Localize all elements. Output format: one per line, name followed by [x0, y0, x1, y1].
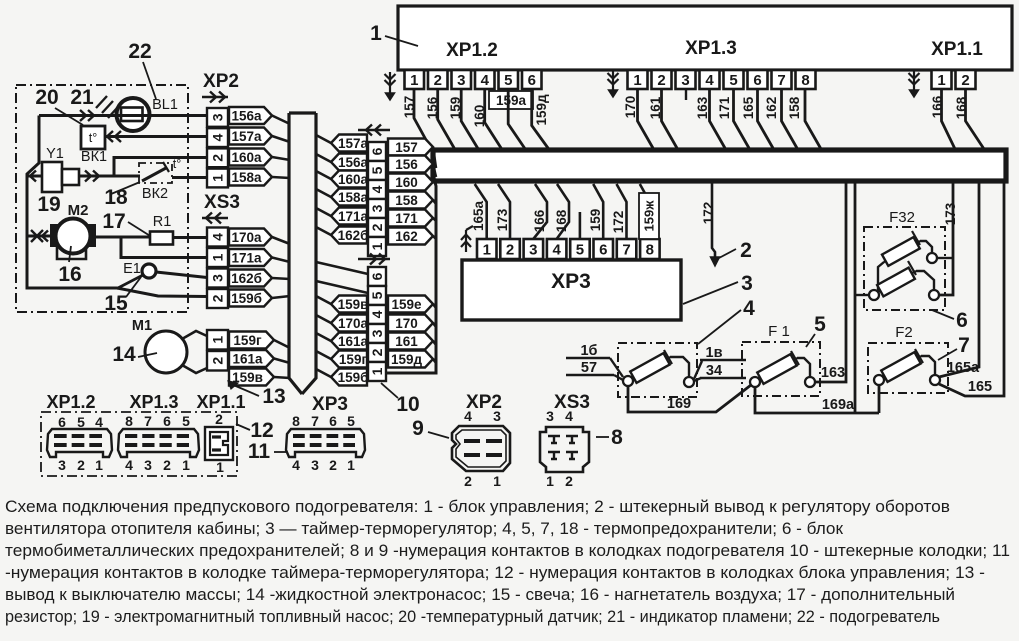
svg-text:6: 6 — [528, 72, 536, 89]
svg-text:1: 1 — [210, 336, 226, 344]
svg-text:2: 2 — [163, 457, 171, 473]
svg-text:1: 1 — [369, 367, 385, 375]
svg-text:20: 20 — [35, 86, 58, 109]
svg-text:2: 2 — [369, 348, 385, 356]
svg-text:1в: 1в — [706, 345, 723, 361]
svg-text:ХР3: ХР3 — [312, 394, 348, 415]
svg-text:171: 171 — [395, 211, 418, 226]
svg-text:4: 4 — [210, 133, 226, 141]
svg-text:160: 160 — [395, 175, 418, 190]
svg-text:159б: 159б — [338, 370, 369, 385]
svg-text:2: 2 — [740, 239, 752, 262]
svg-text:157: 157 — [395, 140, 418, 155]
svg-text:М2: М2 — [68, 202, 89, 219]
svg-text:6: 6 — [753, 72, 761, 89]
svg-text:BL1: BL1 — [152, 97, 178, 113]
svg-text:-нумерация контактов в колодке: -нумерация контактов в колодке таймера-т… — [5, 564, 985, 582]
svg-text:1: 1 — [182, 457, 190, 473]
svg-text:3: 3 — [144, 457, 152, 473]
svg-text:t°: t° — [89, 131, 97, 145]
svg-text:2: 2 — [369, 223, 385, 231]
svg-text:1: 1 — [347, 457, 355, 473]
svg-text:5: 5 — [369, 291, 385, 299]
svg-text:вывод к выключателю массы; 14: вывод к выключателю массы; 14 -жидкостно… — [5, 586, 955, 604]
svg-text:4: 4 — [210, 233, 226, 241]
svg-text:7: 7 — [622, 241, 630, 258]
svg-text:159г: 159г — [339, 352, 368, 367]
svg-text:2: 2 — [215, 411, 223, 427]
svg-text:21: 21 — [70, 86, 94, 109]
svg-text:4: 4 — [369, 310, 385, 318]
svg-text:159г: 159г — [233, 333, 262, 348]
svg-text:t°: t° — [173, 157, 181, 171]
svg-text:ХР1.2: ХР1.2 — [46, 392, 95, 412]
svg-text:10: 10 — [396, 393, 419, 416]
svg-text:F 1: F 1 — [768, 323, 790, 340]
svg-text:159д: 159д — [534, 94, 549, 126]
svg-text:161а: 161а — [232, 351, 263, 366]
svg-text:3: 3 — [681, 72, 689, 89]
svg-text:157а: 157а — [338, 136, 369, 151]
svg-text:159а: 159а — [496, 93, 527, 108]
svg-text:7: 7 — [958, 334, 970, 357]
svg-text:162: 162 — [764, 97, 779, 120]
svg-text:161а: 161а — [338, 334, 369, 349]
svg-text:157а: 157а — [231, 129, 262, 144]
svg-text:4: 4 — [705, 72, 714, 89]
svg-text:158а: 158а — [231, 170, 262, 185]
svg-text:170а: 170а — [231, 230, 262, 245]
svg-text:М1: М1 — [132, 318, 152, 334]
svg-text:7: 7 — [311, 413, 319, 429]
svg-text:6: 6 — [956, 309, 968, 332]
svg-text:170: 170 — [623, 96, 638, 119]
svg-text:1: 1 — [483, 241, 491, 258]
svg-text:термобиметаллических предохран: термобиметаллических предохранителей; 8 … — [5, 542, 1010, 560]
svg-text:2: 2 — [506, 241, 514, 258]
svg-text:3: 3 — [311, 457, 319, 473]
svg-text:8: 8 — [801, 72, 809, 89]
svg-text:170: 170 — [395, 316, 418, 331]
svg-text:165: 165 — [741, 96, 756, 119]
svg-text:159е: 159е — [391, 297, 422, 312]
svg-text:8: 8 — [646, 241, 654, 258]
svg-text:5: 5 — [576, 241, 584, 258]
svg-text:5: 5 — [369, 166, 385, 174]
svg-text:3: 3 — [58, 457, 66, 473]
svg-text:5: 5 — [182, 413, 190, 429]
svg-text:4: 4 — [369, 185, 385, 193]
svg-text:11: 11 — [248, 440, 271, 463]
svg-text:R1: R1 — [153, 214, 172, 230]
svg-text:6: 6 — [329, 413, 337, 429]
svg-text:3: 3 — [457, 72, 465, 89]
svg-text:5: 5 — [504, 72, 512, 89]
svg-text:ХР1.2: ХР1.2 — [446, 40, 498, 61]
svg-text:2: 2 — [434, 72, 442, 89]
svg-text:2: 2 — [961, 72, 969, 89]
svg-text:3: 3 — [493, 408, 501, 424]
svg-text:165а: 165а — [947, 360, 980, 376]
svg-text:1: 1 — [546, 473, 554, 489]
svg-text:2: 2 — [329, 457, 337, 473]
svg-text:2: 2 — [210, 294, 226, 302]
svg-text:14: 14 — [112, 343, 136, 366]
svg-text:5: 5 — [729, 72, 737, 89]
svg-text:156: 156 — [395, 157, 418, 172]
svg-text:4: 4 — [95, 414, 103, 430]
svg-text:171а: 171а — [231, 250, 262, 265]
svg-text:ХР2: ХР2 — [203, 71, 239, 92]
svg-text:172: 172 — [701, 202, 716, 225]
svg-text:163: 163 — [695, 96, 710, 119]
svg-text:8: 8 — [292, 413, 300, 429]
svg-text:1: 1 — [937, 72, 945, 89]
svg-text:1: 1 — [633, 72, 641, 89]
svg-text:1: 1 — [493, 473, 501, 489]
svg-text:5: 5 — [77, 414, 85, 430]
svg-text:169: 169 — [667, 396, 691, 412]
svg-text:159ж: 159ж — [642, 200, 657, 232]
svg-text:165а: 165а — [471, 200, 486, 231]
svg-text:Схема подключения предпусковог: Схема подключения предпускового подогрев… — [5, 498, 950, 516]
svg-text:16: 16 — [58, 263, 81, 286]
svg-text:1: 1 — [95, 457, 103, 473]
svg-text:19: 19 — [37, 193, 60, 216]
svg-text:Е1: Е1 — [123, 261, 141, 277]
svg-text:2: 2 — [565, 473, 573, 489]
svg-text:3: 3 — [546, 408, 554, 424]
svg-text:159б: 159б — [231, 291, 262, 306]
svg-text:5: 5 — [347, 413, 355, 429]
svg-text:F32: F32 — [889, 209, 915, 226]
svg-text:6: 6 — [599, 241, 607, 258]
svg-text:168: 168 — [554, 209, 569, 232]
svg-text:6: 6 — [163, 413, 171, 429]
svg-text:2: 2 — [657, 72, 665, 89]
svg-text:171а: 171а — [338, 209, 369, 224]
svg-text:160а: 160а — [231, 150, 262, 165]
svg-text:172: 172 — [611, 211, 626, 234]
svg-text:2: 2 — [77, 457, 85, 473]
svg-text:18: 18 — [104, 186, 128, 209]
svg-text:1: 1 — [370, 22, 382, 45]
svg-text:4: 4 — [125, 457, 133, 473]
svg-text:7: 7 — [144, 413, 152, 429]
svg-text:158а: 158а — [338, 190, 369, 205]
svg-text:166: 166 — [532, 209, 547, 232]
svg-text:вентилятора отопителя кабины;: вентилятора отопителя кабины; 3 — таймер… — [5, 520, 844, 538]
svg-text:F2: F2 — [895, 324, 913, 341]
svg-text:8: 8 — [125, 413, 133, 429]
svg-text:171: 171 — [717, 96, 732, 119]
svg-text:3: 3 — [210, 274, 226, 282]
svg-text:2: 2 — [210, 154, 226, 162]
svg-text:1: 1 — [210, 174, 226, 182]
svg-text:2: 2 — [210, 357, 226, 365]
svg-text:ВК1: ВК1 — [81, 149, 107, 165]
svg-text:1б: 1б — [580, 343, 597, 359]
svg-text:1: 1 — [369, 242, 385, 250]
svg-text:162б: 162б — [231, 271, 262, 286]
svg-text:159в: 159в — [338, 297, 369, 312]
svg-text:8: 8 — [611, 426, 623, 449]
svg-text:156а: 156а — [231, 108, 262, 123]
svg-text:Y1: Y1 — [46, 146, 64, 162]
svg-text:165: 165 — [968, 379, 992, 395]
svg-text:1: 1 — [410, 72, 418, 89]
svg-text:3: 3 — [741, 272, 753, 295]
svg-text:5: 5 — [814, 313, 826, 336]
svg-text:3: 3 — [369, 204, 385, 212]
svg-text:163: 163 — [821, 365, 845, 381]
svg-text:ХР1.3: ХР1.3 — [129, 392, 178, 412]
svg-text:12: 12 — [250, 419, 273, 442]
svg-text:4: 4 — [464, 408, 472, 424]
svg-text:6: 6 — [369, 272, 385, 280]
svg-text:57: 57 — [581, 360, 597, 376]
svg-text:ХР1.1: ХР1.1 — [196, 392, 245, 412]
svg-text:13: 13 — [262, 385, 285, 408]
svg-text:ХР3: ХР3 — [551, 270, 591, 293]
svg-text:17: 17 — [102, 210, 125, 233]
svg-text:4: 4 — [292, 457, 300, 473]
svg-text:6: 6 — [369, 147, 385, 155]
svg-text:159д: 159д — [391, 352, 423, 367]
svg-text:170а: 170а — [338, 316, 369, 331]
svg-text:169а: 169а — [822, 397, 855, 413]
svg-text:ВК2: ВК2 — [142, 186, 168, 202]
svg-text:2: 2 — [464, 473, 472, 489]
svg-text:22: 22 — [128, 40, 151, 63]
svg-text:34: 34 — [706, 363, 722, 379]
svg-text:159: 159 — [588, 209, 603, 232]
svg-text:156а: 156а — [338, 155, 369, 170]
svg-text:4: 4 — [552, 241, 561, 258]
svg-text:XS3: XS3 — [204, 192, 240, 213]
svg-text:162: 162 — [395, 229, 418, 244]
svg-text:ХР1.1: ХР1.1 — [931, 39, 983, 60]
svg-text:162б: 162б — [338, 228, 369, 243]
svg-text:7: 7 — [777, 72, 785, 89]
svg-text:1: 1 — [210, 253, 226, 261]
svg-text:3: 3 — [210, 113, 226, 121]
svg-text:1: 1 — [216, 459, 224, 475]
svg-text:4: 4 — [743, 297, 755, 320]
svg-text:4: 4 — [481, 72, 490, 89]
svg-text:4: 4 — [565, 408, 573, 424]
svg-text:3: 3 — [529, 241, 537, 258]
svg-text:ХР1.3: ХР1.3 — [685, 38, 737, 59]
svg-text:158: 158 — [395, 193, 418, 208]
svg-text:9: 9 — [412, 417, 424, 440]
svg-text:173: 173 — [943, 202, 958, 225]
svg-text:160а: 160а — [338, 172, 369, 187]
svg-text:15: 15 — [104, 292, 128, 315]
svg-text:резистор; 19 - электромагнитны: резистор; 19 - электромагнитный топливны… — [5, 608, 940, 626]
svg-text:6: 6 — [58, 414, 66, 430]
svg-text:3: 3 — [369, 329, 385, 337]
svg-text:158: 158 — [787, 96, 802, 119]
svg-text:161: 161 — [395, 334, 418, 349]
svg-text:173: 173 — [495, 208, 510, 231]
